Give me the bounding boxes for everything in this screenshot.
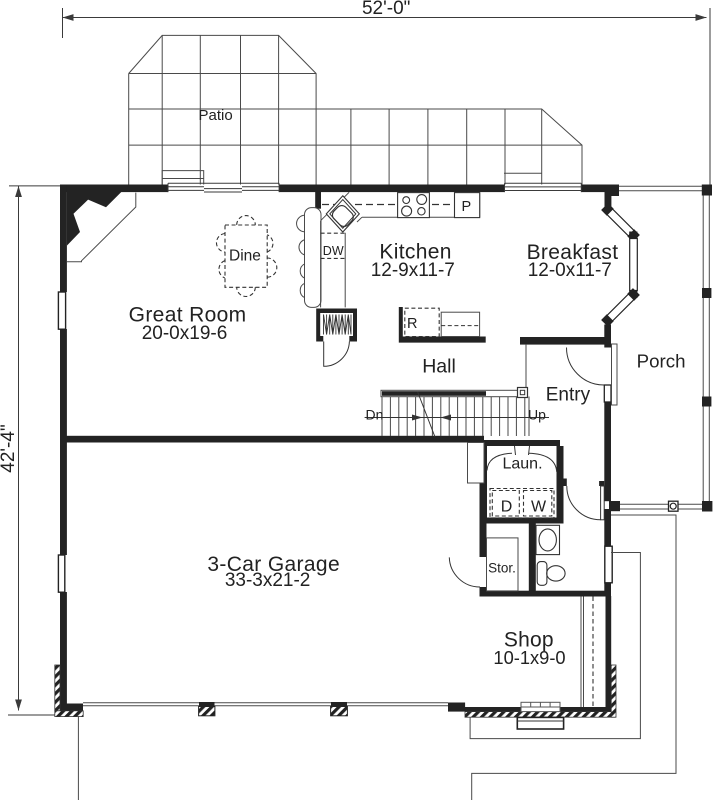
svg-text:DW: DW [323, 244, 344, 258]
svg-text:10-1x9-0: 10-1x9-0 [493, 647, 565, 668]
svg-text:Laun.: Laun. [502, 456, 542, 473]
svg-text:52'-0": 52'-0" [362, 0, 410, 19]
svg-text:Dn: Dn [366, 407, 384, 423]
svg-text:Up: Up [528, 407, 546, 423]
svg-text:42'-4": 42'-4" [0, 424, 19, 472]
svg-text:Hall: Hall [422, 356, 456, 378]
svg-text:Porch: Porch [637, 351, 686, 372]
svg-text:W: W [531, 499, 547, 516]
svg-text:Patio: Patio [199, 107, 233, 124]
svg-text:12-0x11-7: 12-0x11-7 [528, 260, 612, 281]
svg-text:Entry: Entry [546, 385, 591, 406]
svg-text:Stor.: Stor. [488, 561, 516, 576]
svg-text:12-9x11-7: 12-9x11-7 [371, 260, 455, 281]
svg-text:D: D [501, 499, 513, 516]
svg-text:Dine: Dine [229, 248, 261, 265]
svg-text:R: R [407, 316, 417, 332]
svg-text:33-3x21-2: 33-3x21-2 [225, 570, 311, 591]
svg-text:P: P [462, 199, 472, 215]
svg-text:20-0x19-6: 20-0x19-6 [142, 323, 228, 344]
